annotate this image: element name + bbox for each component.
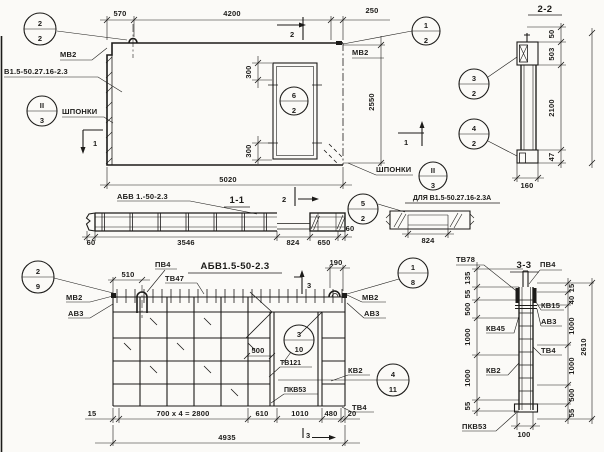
av3-plate xyxy=(515,306,537,309)
balloon-bottom: 2 xyxy=(424,36,428,45)
label-shponki-right: ШПОНКИ xyxy=(376,165,411,174)
section-mark-2-mid: 2 xyxy=(282,195,286,204)
balloon-bottom: 2 xyxy=(292,106,296,115)
reinforcement-title: АБВ1.5-50-2.3 xyxy=(200,261,269,272)
label-mv2-right: МВ2 xyxy=(352,48,368,57)
balloon-3-10: 3 10 xyxy=(284,325,314,355)
balloon-bottom: 2 xyxy=(361,214,365,223)
column-body xyxy=(521,65,536,150)
dim-1000-left-b: 1000 xyxy=(463,369,472,387)
balloon-top: 4 xyxy=(391,370,396,379)
corner-cut-dashes xyxy=(324,144,343,164)
top-stirrups xyxy=(117,289,342,303)
dim-20: 20 xyxy=(348,409,357,418)
balloon-2-9: 2 9 xyxy=(22,261,54,293)
balloon-1-2: 1 2 xyxy=(412,17,440,45)
cage-ties xyxy=(519,300,533,404)
balloon-top: 1 xyxy=(411,263,415,272)
dim-2100: 2100 xyxy=(547,99,556,117)
balloon-5-2: 5 2 xyxy=(348,194,378,224)
section-2-2-view: 2-2 50 503 2100 47 160 3 2 4 2 xyxy=(459,4,595,190)
balloon-4-11: 4 11 xyxy=(377,364,409,396)
balloon-bottom: 11 xyxy=(389,385,397,394)
dim-190: 190 xyxy=(329,258,342,267)
dim-15: 15 xyxy=(88,409,97,418)
balloon-top: 2 xyxy=(38,19,42,28)
dim-2610: 2610 xyxy=(579,338,588,356)
reinforcement-plan-view: АБВ1.5-50-2.3 510 ПВ4 ТВ47 МВ2 АВ3 190 М… xyxy=(22,258,428,446)
balloon-bottom: 10 xyxy=(295,345,304,354)
dim-300-bottom: 300 xyxy=(244,144,253,157)
section-1-1-title: 1-1 xyxy=(230,195,245,206)
dim-500-left: 500 xyxy=(463,302,472,315)
balloon-top: II xyxy=(40,101,45,110)
dim-40: 40 xyxy=(567,296,576,305)
label-tv121: ТВ121 xyxy=(280,360,301,367)
section-3-3-title: 3-3 xyxy=(517,260,532,271)
column-body-inner xyxy=(524,65,533,150)
balloon-top: 6 xyxy=(292,91,296,100)
dim-135: 135 xyxy=(463,271,472,284)
dim-4200: 4200 xyxy=(223,9,241,18)
drawing-sheet: 570 4200 250 5020 2550 300 300 МВ2 В1.5-… xyxy=(0,0,604,452)
top-loop xyxy=(523,271,528,287)
mesh-vertical-bars xyxy=(113,297,345,406)
slab-left-key xyxy=(87,213,96,231)
section-mark-3-top: 3 xyxy=(307,281,311,290)
section-mark-1-right: 1 xyxy=(404,138,408,147)
balloon-bottom: 2 xyxy=(38,34,42,43)
dim-55-right: 55 xyxy=(567,409,576,418)
dim-4935: 4935 xyxy=(218,433,236,442)
dim-1000-right-a: 1000 xyxy=(567,317,576,335)
balloon-top: 5 xyxy=(361,199,365,208)
dim-55-bottom-left: 55 xyxy=(463,402,472,411)
label-pkv53: ПКВ53 xyxy=(284,387,306,394)
balloon-bottom: 3 xyxy=(431,181,435,190)
label-mv2-right: МВ2 xyxy=(362,293,378,302)
balloon-leaders xyxy=(488,57,517,156)
section-mark-1-left: 1 xyxy=(93,139,97,148)
section-3-3-view: 3-3 ТВ78 ПВ4 КВ15 АВ3 КВ45 ТВ4 КВ2 ПКВ53… xyxy=(456,255,595,439)
balloon-top: 4 xyxy=(472,124,477,133)
dim-503: 503 xyxy=(547,47,556,60)
dim-1000-right-b: 1000 xyxy=(567,357,576,375)
section-2-2-title: 2-2 xyxy=(538,4,553,15)
dim-2550: 2550 xyxy=(367,93,376,111)
dim-510: 510 xyxy=(121,270,134,279)
dim-570: 570 xyxy=(113,9,126,18)
label-kv15: КВ15 xyxy=(541,301,560,310)
label-leaders xyxy=(54,269,399,412)
dim-15: 15 xyxy=(567,284,576,293)
balloon-bottom: 3 xyxy=(40,116,44,125)
pier-piece-detail xyxy=(310,213,345,231)
balloon-top: 2 xyxy=(36,267,40,276)
dim-250: 250 xyxy=(365,6,378,15)
dim-160: 160 xyxy=(520,181,533,190)
dim-3546: 3546 xyxy=(177,238,195,247)
dim-1010: 1010 xyxy=(291,409,309,418)
label-tv4: ТВ4 xyxy=(541,346,556,355)
balloon-bottom: 8 xyxy=(411,278,415,287)
balloon-top: 3 xyxy=(472,74,476,83)
balloon-1-8: 1 8 xyxy=(398,258,428,288)
label-panel-mark: В1.5-50.27.16-2.3 xyxy=(4,67,68,76)
dim-60-right: 60 xyxy=(346,224,355,233)
dim-50: 50 xyxy=(547,30,556,39)
drawing-canvas: 570 4200 250 5020 2550 300 300 МВ2 В1.5-… xyxy=(0,0,604,452)
label-av3: АВ3 xyxy=(541,317,557,326)
label-kv2: КВ2 xyxy=(486,366,501,375)
dim-47: 47 xyxy=(547,153,556,162)
door-sill xyxy=(277,224,310,230)
caption-alt-variant: ДЛЯ В1.5-50.27.16-2.3А xyxy=(413,195,491,202)
mv2-embed-mark xyxy=(336,41,342,45)
balloon-top: II xyxy=(431,166,436,175)
label-kv2: КВ2 xyxy=(348,366,363,375)
corner-embed-right xyxy=(342,293,347,298)
section-mark-2-top: 2 xyxy=(290,30,294,39)
alt-piece-detail xyxy=(386,213,474,228)
dim-1000-left-a: 1000 xyxy=(463,328,472,346)
column-foot xyxy=(517,150,538,163)
label-pv4: ПВ4 xyxy=(155,260,171,269)
dim-500-right: 500 xyxy=(567,388,576,401)
dim-480: 480 xyxy=(324,409,337,418)
balloon-6-2: 6 2 xyxy=(280,87,308,115)
dim-824-alt: 824 xyxy=(421,236,435,245)
label-pv4: ПВ4 xyxy=(540,260,556,269)
balloon-4-2: 4 2 xyxy=(459,119,489,149)
lifting-loop-right xyxy=(329,291,340,297)
balloon-top: 1 xyxy=(424,21,428,30)
label-abv: АБВ 1.-50-2.3 xyxy=(117,192,168,201)
dim-700x4: 700 x 4 = 2800 xyxy=(156,409,209,418)
label-mv2-left: МВ2 xyxy=(66,293,82,302)
dim-650: 650 xyxy=(317,238,330,247)
section-1-1-view: АБВ 1.-50-2.3 1-1 60 3546 824 650 60 ДЛЯ… xyxy=(82,192,500,247)
bar-hooks xyxy=(124,292,322,396)
head-embed-diagonals xyxy=(520,45,528,62)
dim-824: 824 xyxy=(286,238,300,247)
dim-300-top: 300 xyxy=(244,65,253,78)
alt-piece-outline xyxy=(390,211,470,229)
label-mv2-left: МВ2 xyxy=(60,50,76,59)
top-plan-view: 570 4200 250 5020 2550 300 300 МВ2 В1.5-… xyxy=(4,6,447,206)
dim-5020: 5020 xyxy=(219,175,237,184)
kv15-plate-right xyxy=(533,288,537,303)
dim-100: 100 xyxy=(517,430,530,439)
mesh-horizontal-bars xyxy=(113,297,345,406)
balloon-bottom: 2 xyxy=(472,139,476,148)
balloon-II-3-right: II 3 xyxy=(419,162,447,190)
label-av3-left: АВ3 xyxy=(68,309,84,318)
dim-610: 610 xyxy=(255,409,268,418)
label-av3-right: АВ3 xyxy=(364,309,380,318)
balloon-II-3-left: II 3 xyxy=(27,96,57,126)
balloon-2-2: 2 2 xyxy=(24,13,56,45)
label-shponki-left: ШПОНКИ xyxy=(62,107,97,116)
top-loop xyxy=(524,33,530,42)
slab-ribs xyxy=(102,213,267,231)
balloon-bottom: 9 xyxy=(36,282,40,291)
corner-embed-left xyxy=(111,293,116,298)
balloon-top: 3 xyxy=(297,330,301,339)
balloon-bottom: 2 xyxy=(472,89,476,98)
label-tv47: ТВ47 xyxy=(165,274,184,283)
dim-lines xyxy=(100,16,390,189)
label-tv78: ТВ78 xyxy=(456,255,475,264)
section-mark-arrows xyxy=(81,23,425,202)
dim-60-left: 60 xyxy=(87,238,96,247)
dim-55-top: 55 xyxy=(463,290,472,299)
dim-500: 500 xyxy=(251,346,264,355)
label-kv45: КВ45 xyxy=(486,324,505,333)
label-pkv53: ПКВ53 xyxy=(462,422,487,431)
section-mark-3-bottom: 3 xyxy=(306,431,310,440)
balloon-3-2: 3 2 xyxy=(459,69,489,99)
foot-embed xyxy=(520,153,526,163)
